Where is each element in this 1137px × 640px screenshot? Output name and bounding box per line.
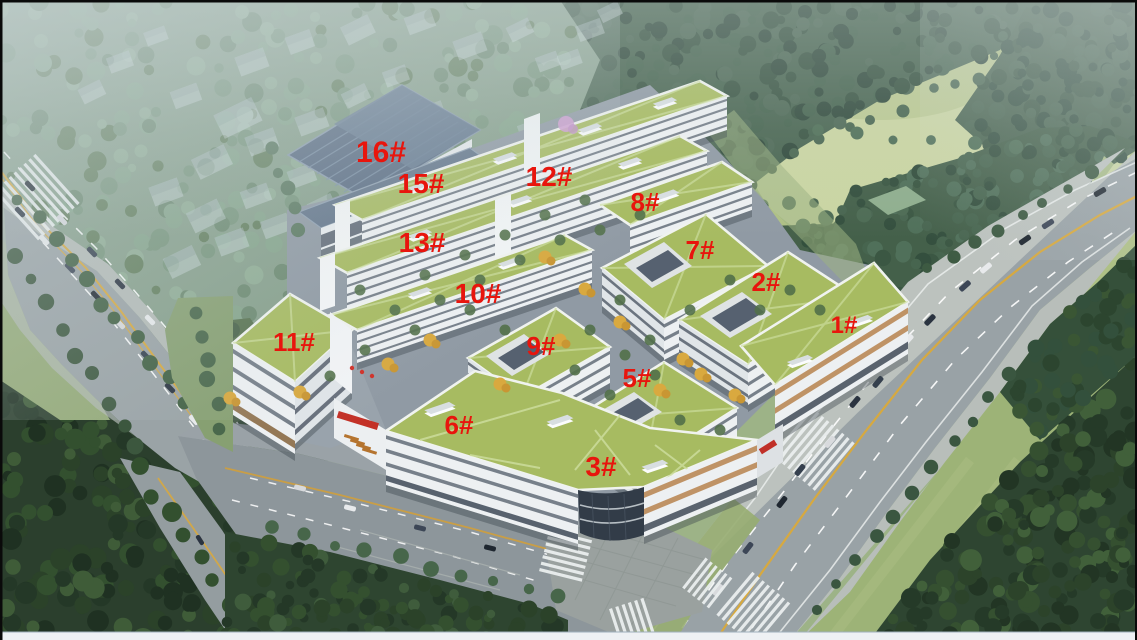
svg-text:8#: 8# bbox=[631, 187, 660, 217]
svg-text:13#: 13# bbox=[399, 227, 446, 258]
svg-text:3#: 3# bbox=[585, 451, 617, 482]
svg-text:10#: 10# bbox=[455, 278, 502, 309]
svg-text:2#: 2# bbox=[752, 267, 781, 297]
svg-text:15#: 15# bbox=[398, 168, 445, 199]
svg-text:7#: 7# bbox=[686, 235, 715, 265]
svg-text:6#: 6# bbox=[445, 410, 474, 440]
svg-text:12#: 12# bbox=[526, 161, 573, 192]
svg-text:11#: 11# bbox=[273, 327, 315, 357]
svg-text:5#: 5# bbox=[623, 363, 652, 393]
svg-text:1#: 1# bbox=[831, 312, 858, 339]
svg-text:16#: 16# bbox=[356, 136, 406, 169]
svg-text:9#: 9# bbox=[527, 331, 556, 361]
